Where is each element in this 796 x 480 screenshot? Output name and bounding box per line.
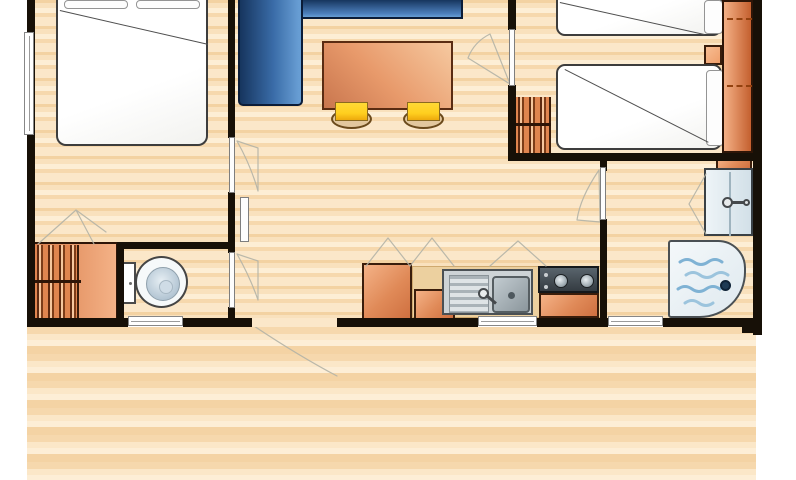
window-wc (128, 316, 183, 326)
layer-openings (0, 0, 796, 480)
door-leaf-hall (240, 197, 249, 242)
door-panel-wc (229, 252, 235, 308)
door-panel-bedroom-left (229, 137, 235, 193)
window-bathroom (608, 316, 663, 326)
entrance-door-opening (252, 318, 337, 327)
window-kitchen (478, 316, 537, 326)
door-panel-bedroom-right (509, 29, 515, 86)
door-panel-bathroom (600, 167, 606, 220)
floor-plan (0, 0, 796, 480)
window-bedroom-left (24, 32, 34, 135)
